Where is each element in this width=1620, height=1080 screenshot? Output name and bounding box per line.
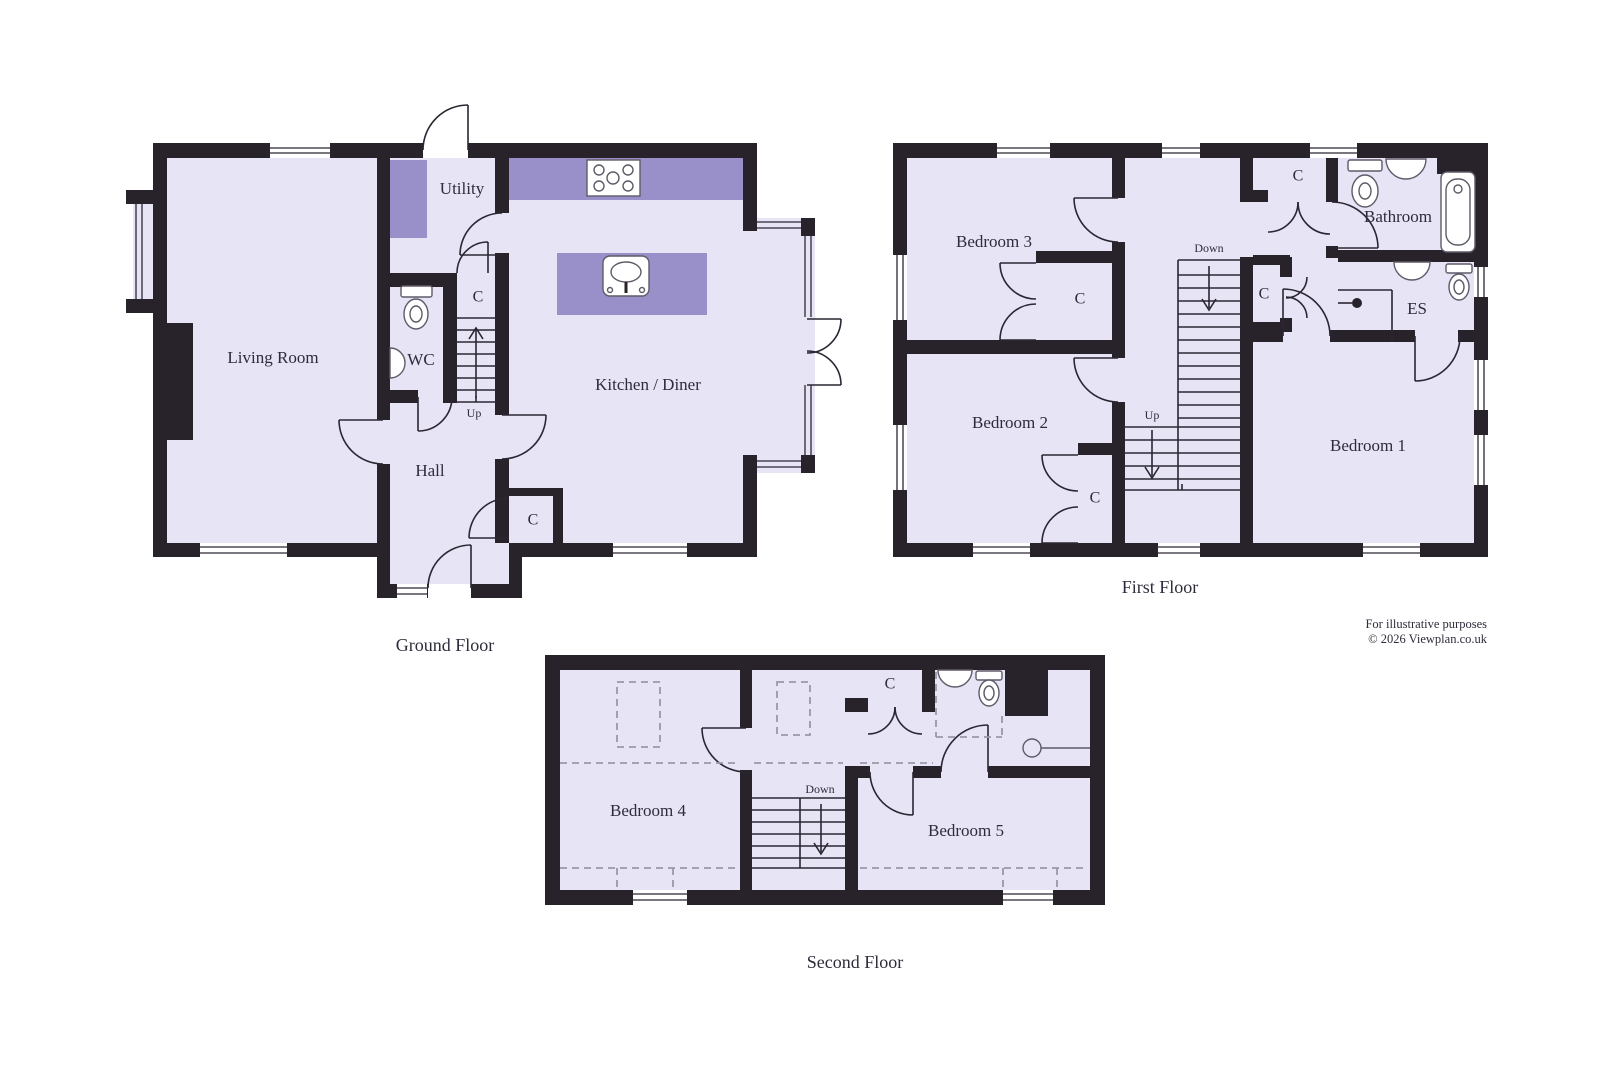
room-label-bedroom4: Bedroom 4 [610, 801, 687, 820]
copyright-note: For illustrative purposes © 2026 Viewpla… [1365, 617, 1487, 646]
second-floor-plan: Bedroom 4 Bedroom 5 C Down Second Floor [545, 655, 1105, 972]
first-floor-plan: Bedroom 3 Bedroom 2 Bedroom 1 Bathroom E… [893, 143, 1488, 597]
stairs-down-label: Down [805, 782, 834, 796]
copyright-line2: © 2026 Viewplan.co.uk [1368, 632, 1488, 646]
ground-floor-area [160, 143, 815, 598]
closet-label: C [885, 676, 896, 693]
bathroom-unit [1437, 150, 1480, 174]
shower-enclosure [1005, 668, 1048, 716]
stairs-up-label: Up [1145, 408, 1160, 422]
first-floor-title: First Floor [1122, 577, 1199, 597]
stairs-up-label: Up [467, 406, 482, 420]
closet-label: C [473, 289, 484, 306]
chimney-breast [167, 323, 193, 440]
room-label-utility: Utility [440, 179, 485, 198]
room-label-kitchen: Kitchen / Diner [595, 375, 701, 394]
floorplan-drawing: Living Room Utility WC Hall Kitchen / Di… [0, 0, 1620, 1080]
closet-label: C [528, 512, 539, 529]
room-label-bedroom2: Bedroom 2 [972, 413, 1048, 432]
room-label-bedroom3: Bedroom 3 [956, 232, 1032, 251]
ground-floor-title: Ground Floor [396, 635, 495, 655]
stairs-down-label: Down [1194, 241, 1223, 255]
room-label-wc: WC [407, 350, 434, 369]
ground-floor-plan: Living Room Utility WC Hall Kitchen / Di… [126, 105, 841, 655]
room-label-bathroom: Bathroom [1364, 207, 1432, 226]
room-label-bedroom1: Bedroom 1 [1330, 436, 1406, 455]
closet-label: C [1293, 168, 1304, 185]
room-label-living: Living Room [227, 348, 318, 367]
closet-label: C [1259, 286, 1270, 303]
copyright-line1: For illustrative purposes [1365, 617, 1487, 631]
closet-label: C [1090, 490, 1101, 507]
stove-icon [587, 160, 640, 196]
room-label-bedroom5: Bedroom 5 [928, 821, 1004, 840]
floorplan-page: Living Room Utility WC Hall Kitchen / Di… [0, 0, 1620, 1080]
bathtub-icon [1441, 172, 1475, 252]
utility-counter [390, 160, 427, 238]
island-sink-icon [603, 256, 649, 296]
room-label-ensuite: ES [1407, 299, 1427, 318]
room-label-hall: Hall [415, 461, 445, 480]
closet-label: C [1075, 291, 1086, 308]
second-floor-title: Second Floor [807, 952, 904, 972]
